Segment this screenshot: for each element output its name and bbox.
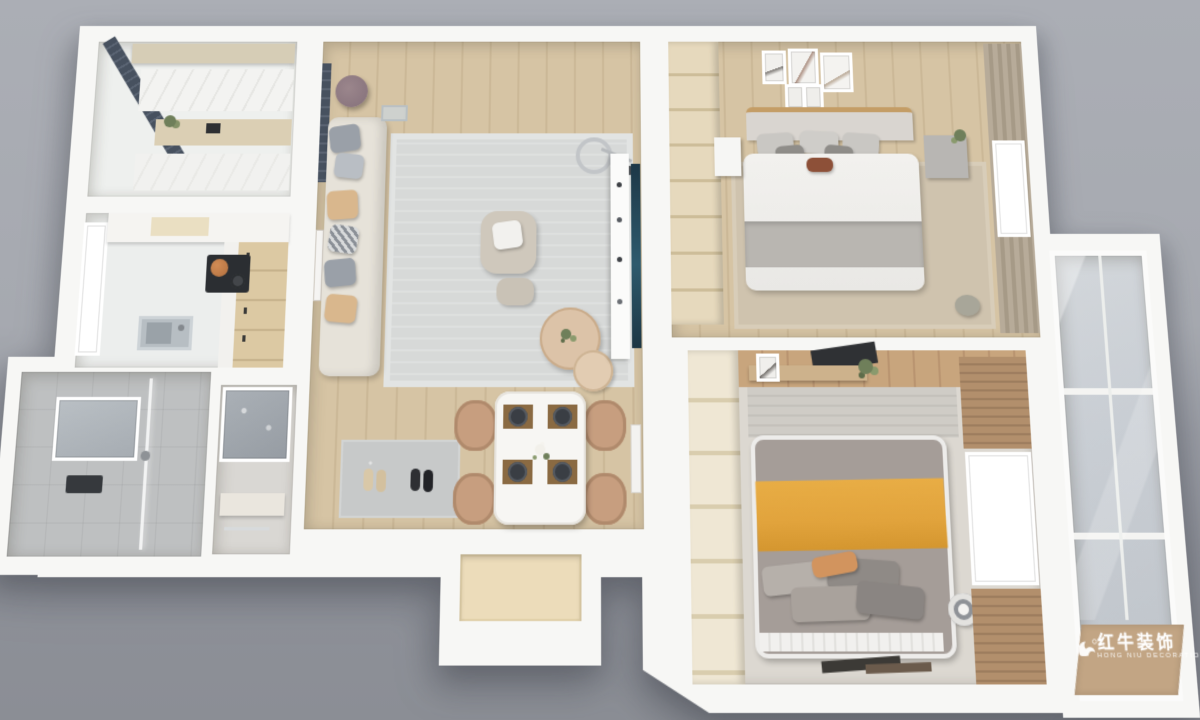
dining-chair-sw	[452, 473, 496, 525]
footstool	[496, 278, 534, 306]
shelf-plant	[858, 359, 873, 374]
leaning-frame	[630, 424, 641, 493]
tv-screen	[631, 164, 642, 348]
vanity-counter	[219, 493, 284, 516]
room-second-bedroom	[688, 350, 1047, 684]
vanity-mirror	[222, 390, 289, 458]
dining-chair-nw	[454, 400, 497, 451]
console-decor	[617, 182, 622, 187]
room-living-dining	[304, 42, 644, 530]
dining-chair-se	[584, 473, 627, 525]
plate-2	[508, 462, 527, 482]
coffee-table-small	[573, 350, 613, 391]
master-blanket	[745, 221, 924, 267]
master-wardrobe	[668, 42, 724, 325]
brand-name-en: HONG NIU DECORATION	[1097, 653, 1179, 660]
brand-watermark: 红牛装饰 HONG NIU DECORATION	[1083, 634, 1179, 660]
gallery-frame-5	[823, 55, 850, 89]
nightstand-right	[923, 135, 968, 178]
sink-basin	[146, 322, 172, 343]
room-bathroom	[7, 372, 212, 557]
shower-glass-panel	[139, 378, 153, 549]
entry-door-recess	[459, 554, 581, 621]
room-vanity	[212, 385, 297, 554]
gallery-frame-3	[788, 87, 803, 107]
room-master-bedroom	[668, 42, 1040, 338]
side-table-glass	[381, 105, 408, 121]
room-laundry-balcony	[87, 42, 297, 197]
shower-handle	[140, 451, 150, 461]
watermark-sill: 红牛装饰 HONG NIU DECORATION	[1075, 625, 1184, 696]
slippers-black	[410, 469, 420, 491]
sofa-pillow-plaid	[327, 224, 360, 255]
plate-1	[508, 407, 527, 427]
bedroom2-headboard-wall	[747, 387, 959, 437]
shelf-photo-frame	[759, 357, 776, 379]
table-plant	[561, 329, 572, 340]
floor-lamp-ring	[576, 137, 613, 174]
sofa-pillow-tan-2	[324, 293, 358, 323]
slat-wall-top	[959, 357, 1032, 449]
shower-mat	[65, 475, 103, 493]
bed2-base	[759, 633, 943, 652]
nightstand-plant	[954, 129, 967, 141]
towel-bar	[224, 527, 269, 530]
entry-doormat	[339, 440, 461, 518]
small-appliance	[206, 123, 221, 133]
slippers-beige	[363, 469, 373, 491]
apartment-floorplan: 红牛装饰 HONG NIU DECORATION	[0, 26, 1200, 718]
gallery-frame-2	[791, 52, 816, 84]
dining-chair-ne	[584, 400, 627, 451]
laundry-cabinet-top	[138, 69, 294, 111]
balcony-rail-shelf	[131, 44, 295, 64]
air-purifier	[335, 75, 368, 107]
room-kitchen	[75, 213, 290, 367]
cabinet-beige-inset	[150, 217, 209, 236]
gallery-frame-4	[806, 87, 821, 107]
brand-name-cn: 红牛装饰	[1096, 634, 1178, 653]
sofa-pillow-gray-2	[324, 257, 357, 288]
bed2-yellow-blanket	[755, 478, 948, 551]
master-pillow-accent	[806, 158, 833, 172]
bathroom-window	[55, 400, 138, 457]
sofa-pillow-tan-1	[327, 189, 359, 220]
armchair-pillow	[492, 220, 524, 251]
render-background: 红牛装饰 HONG NIU DECORATION	[0, 0, 1200, 720]
slat-wall-bottom	[971, 589, 1047, 685]
gallery-frame-1	[765, 54, 784, 82]
bedroom2-window	[968, 455, 1036, 582]
sofa-pillow-gray-1	[328, 123, 361, 153]
hongniu-bull-logo-icon	[1074, 636, 1100, 659]
table-flowers	[535, 444, 546, 455]
bedroom2-wardrobe	[688, 350, 746, 684]
plate-3	[553, 407, 572, 427]
floor-frame-2	[865, 662, 931, 674]
laundry-cabinet-bottom	[133, 154, 290, 191]
sofa-pillow-light	[333, 152, 365, 179]
nightstand-left	[714, 137, 741, 176]
plate-4	[553, 462, 572, 482]
bedroom-stool	[954, 295, 980, 316]
